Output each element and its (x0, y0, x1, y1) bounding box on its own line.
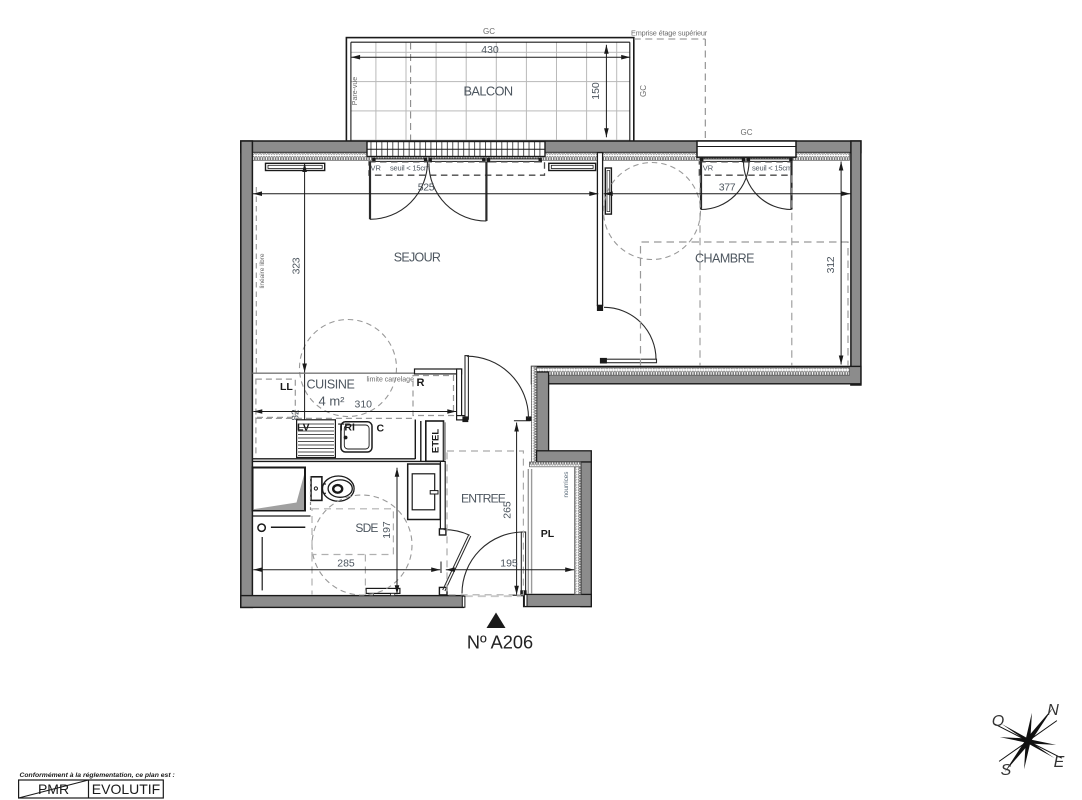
svg-text:LL: LL (280, 381, 293, 393)
svg-text:SDE: SDE (355, 521, 378, 535)
svg-text:Conformément à la réglementati: Conformément à la réglementation, ce pla… (20, 772, 175, 779)
svg-text:195: 195 (500, 558, 518, 570)
svg-text:N: N (1047, 702, 1059, 719)
svg-text:VR: VR (703, 164, 714, 173)
svg-text:150: 150 (590, 82, 602, 100)
svg-text:323: 323 (291, 257, 303, 274)
svg-text:430: 430 (481, 44, 499, 56)
svg-text:Pare-vue: Pare-vue (352, 77, 359, 106)
svg-text:BALCON: BALCON (463, 84, 512, 99)
svg-text:Nº A206: Nº A206 (467, 633, 533, 653)
svg-text:R: R (417, 377, 425, 389)
svg-text:CHAMBRE: CHAMBRE (695, 252, 754, 266)
svg-text:VR: VR (371, 164, 382, 173)
svg-text:310: 310 (355, 399, 373, 411)
svg-text:197: 197 (381, 521, 393, 539)
svg-text:ETEL: ETEL (431, 429, 442, 453)
svg-text:GC: GC (483, 27, 495, 36)
svg-text:O: O (992, 713, 1004, 730)
svg-text:TRI: TRI (338, 422, 355, 434)
svg-text:PMR: PMR (38, 781, 69, 797)
svg-text:LV: LV (297, 422, 310, 434)
svg-text:GC: GC (741, 128, 753, 137)
svg-text:E: E (1054, 754, 1065, 771)
svg-text:4 m²: 4 m² (319, 394, 346, 409)
svg-text:312: 312 (825, 256, 837, 273)
svg-text:C: C (377, 423, 385, 435)
svg-text:CUISINE: CUISINE (307, 378, 355, 392)
svg-text:285: 285 (337, 558, 355, 570)
svg-text:S: S (1001, 762, 1012, 779)
svg-text:ENTREE: ENTREE (461, 492, 506, 506)
svg-text:nourrices: nourrices (563, 472, 570, 498)
svg-text:EVOLUTIF: EVOLUTIF (92, 781, 160, 797)
svg-text:377: 377 (719, 182, 736, 194)
svg-text:265: 265 (502, 501, 514, 519)
svg-text:Emprise étage supérieur: Emprise étage supérieur (631, 29, 708, 38)
svg-text:seuil < 15cm: seuil < 15cm (752, 164, 792, 173)
svg-text:limite carrelage: limite carrelage (367, 377, 415, 384)
svg-text:seuil < 15cm: seuil < 15cm (390, 164, 430, 173)
svg-text:linéaire libre: linéaire libre (259, 253, 266, 288)
svg-text:GC: GC (639, 85, 648, 97)
svg-text:PL: PL (541, 528, 555, 540)
svg-text:SEJOUR: SEJOUR (394, 251, 441, 265)
svg-text:525: 525 (418, 182, 435, 194)
